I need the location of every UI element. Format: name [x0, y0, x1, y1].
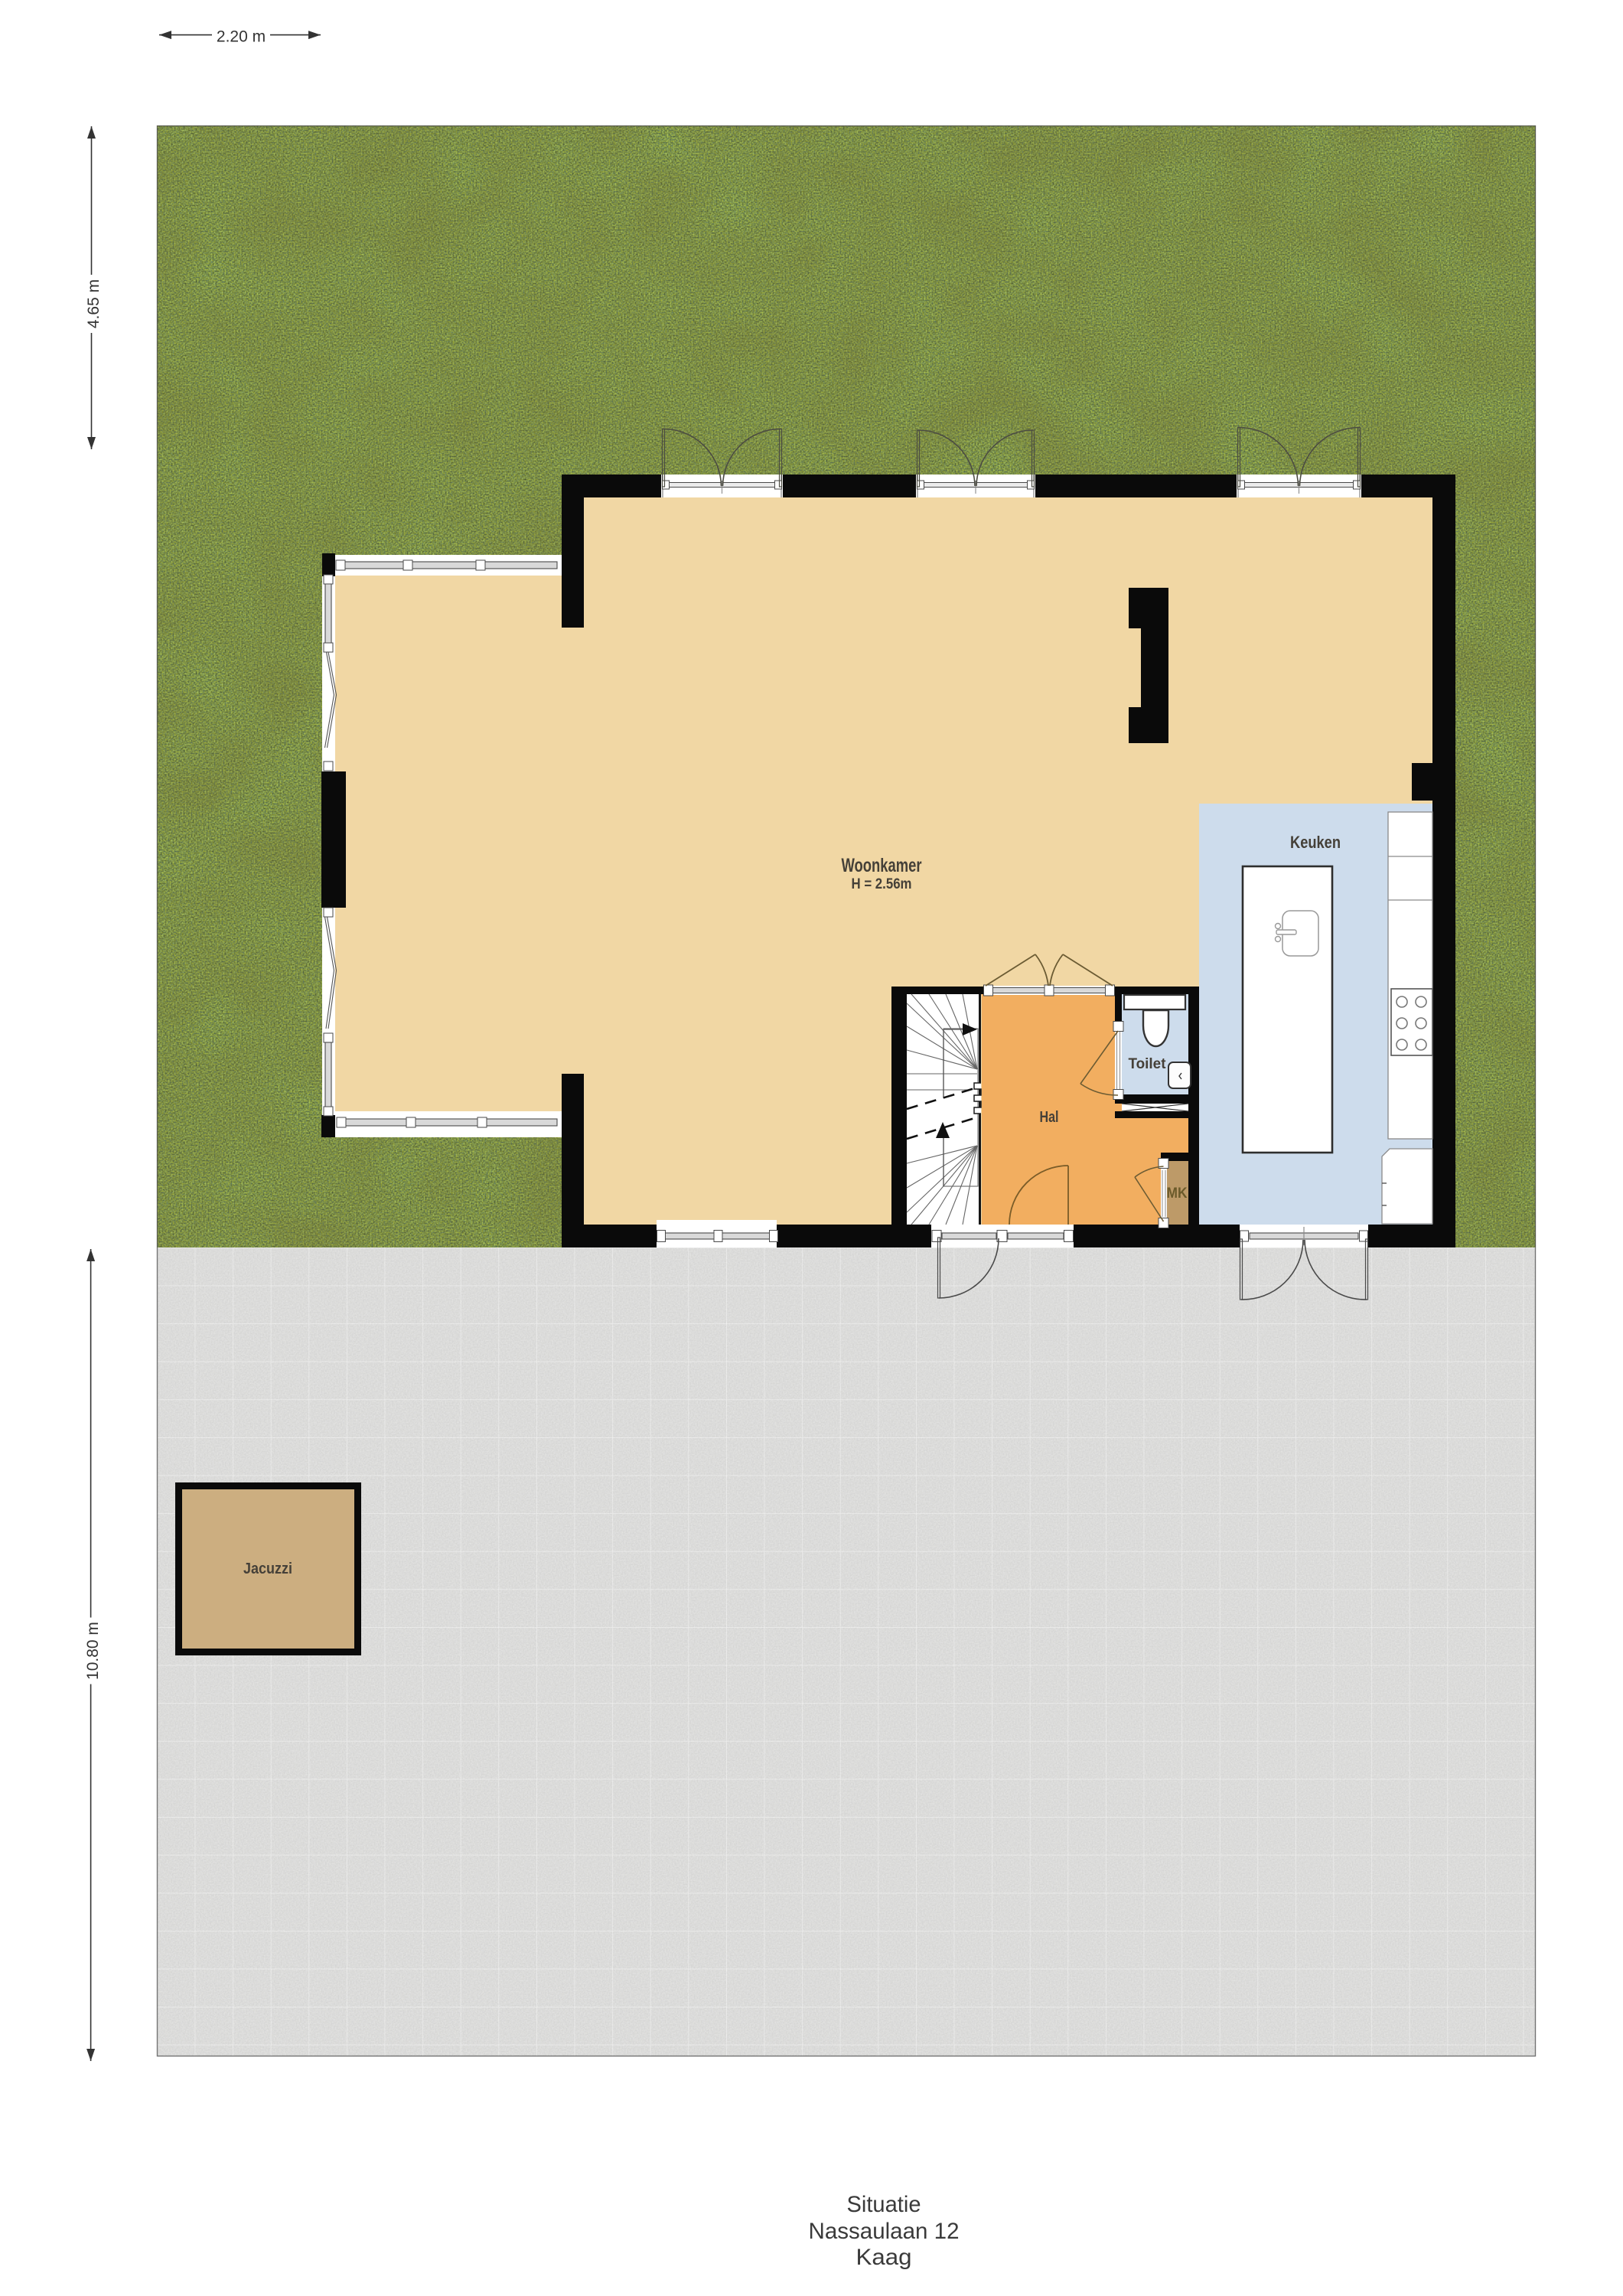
svg-text:4.65 m: 4.65 m: [85, 279, 103, 328]
svg-text:Kaag: Kaag: [856, 2245, 912, 2270]
svg-text:Nassaulaan 12: Nassaulaan 12: [809, 2219, 960, 2244]
svg-text:Jacuzzi: Jacuzzi: [243, 1561, 292, 1577]
svg-text:2.20 m: 2.20 m: [217, 28, 266, 46]
svg-text:Toilet: Toilet: [1129, 1056, 1167, 1072]
svg-text:Situatie: Situatie: [847, 2192, 921, 2217]
svg-text:MK: MK: [1167, 1186, 1188, 1202]
svg-text:Hal: Hal: [1040, 1109, 1059, 1126]
svg-text:10.80 m: 10.80 m: [84, 1622, 102, 1680]
svg-text:Keuken: Keuken: [1290, 833, 1341, 852]
svg-text:Woonkamer: Woonkamer: [842, 855, 922, 876]
svg-text:H = 2.56m: H = 2.56m: [852, 876, 912, 892]
